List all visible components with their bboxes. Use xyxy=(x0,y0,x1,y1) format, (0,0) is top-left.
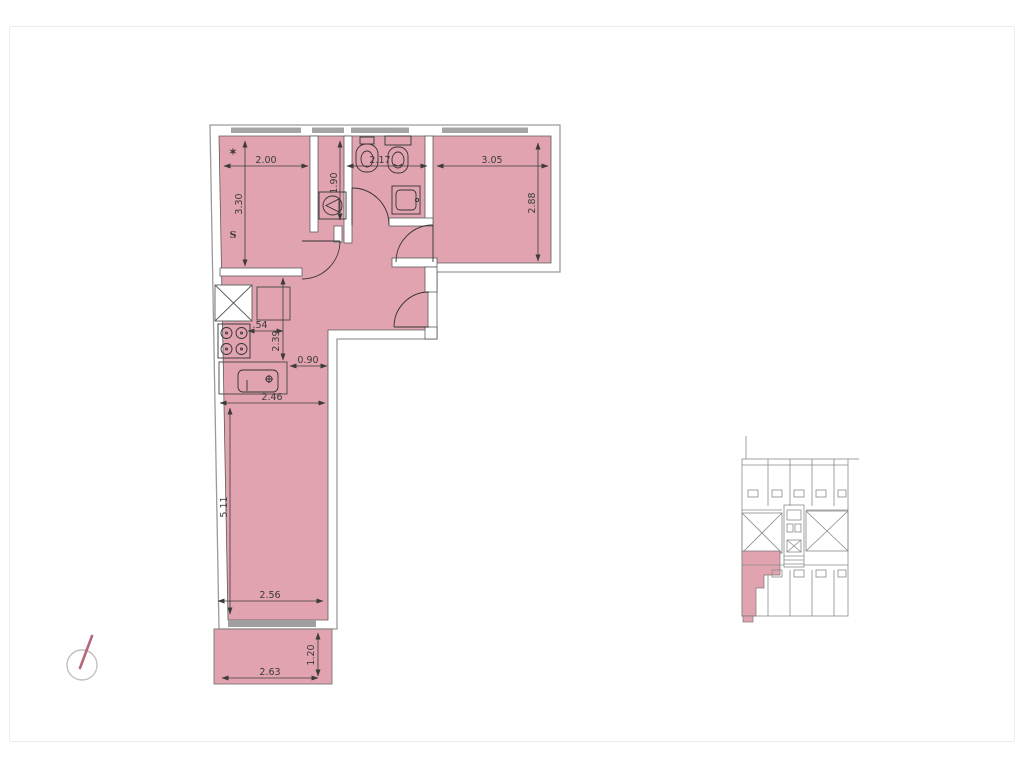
sheet-border xyxy=(9,26,1015,742)
floor-plan-sheet: 2.00 2.17 3.05 3.30 1.90 2.88 .54 2.39 0… xyxy=(0,0,1024,768)
